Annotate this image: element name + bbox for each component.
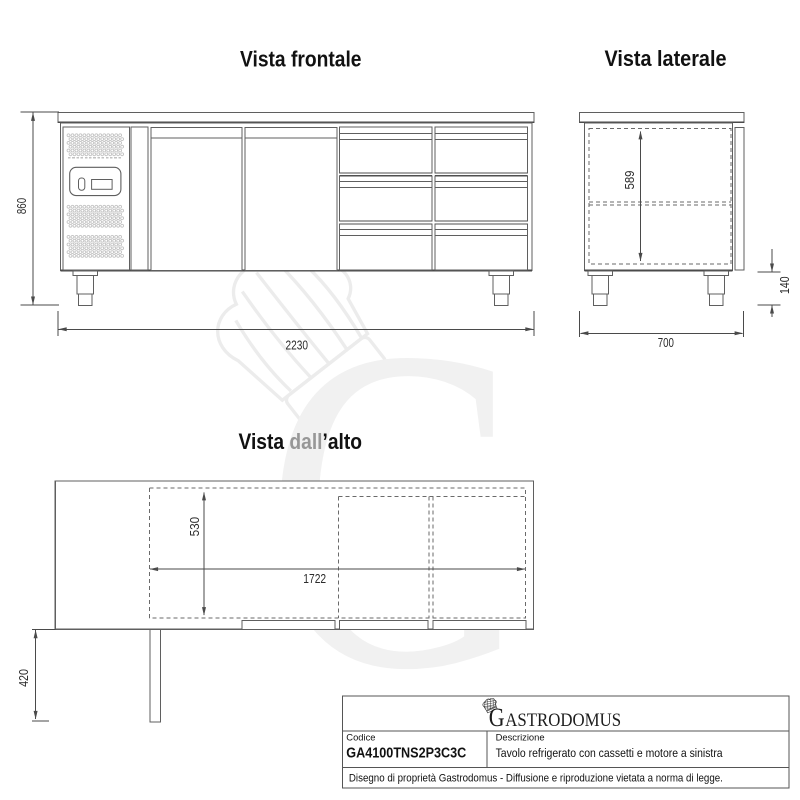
svg-text:Vista dall’alto: Vista dall’alto <box>239 429 363 454</box>
svg-text:Vista frontale: Vista frontale <box>240 47 362 72</box>
svg-text:Disegno di proprietà Gastrodom: Disegno di proprietà Gastrodomus - Diffu… <box>349 772 723 784</box>
svg-text:ASTRODOMUS: ASTRODOMUS <box>505 710 621 731</box>
svg-text:420: 420 <box>16 669 31 687</box>
svg-text:Descrizione: Descrizione <box>496 732 545 743</box>
svg-text:140: 140 <box>777 276 792 294</box>
svg-text:GA4100TNS2P3C3C: GA4100TNS2P3C3C <box>346 744 466 761</box>
svg-text:530: 530 <box>187 517 202 537</box>
svg-text:589: 589 <box>622 171 637 190</box>
svg-text:1722: 1722 <box>303 571 326 586</box>
svg-text:860: 860 <box>14 198 29 214</box>
svg-text:700: 700 <box>658 335 674 350</box>
svg-text:Codice: Codice <box>346 731 375 742</box>
svg-text:Tavolo refrigerato con cassett: Tavolo refrigerato con cassetti e motore… <box>496 746 723 760</box>
svg-text:2230: 2230 <box>285 338 308 353</box>
svg-text:Vista laterale: Vista laterale <box>605 46 727 71</box>
svg-text:G: G <box>489 703 505 732</box>
